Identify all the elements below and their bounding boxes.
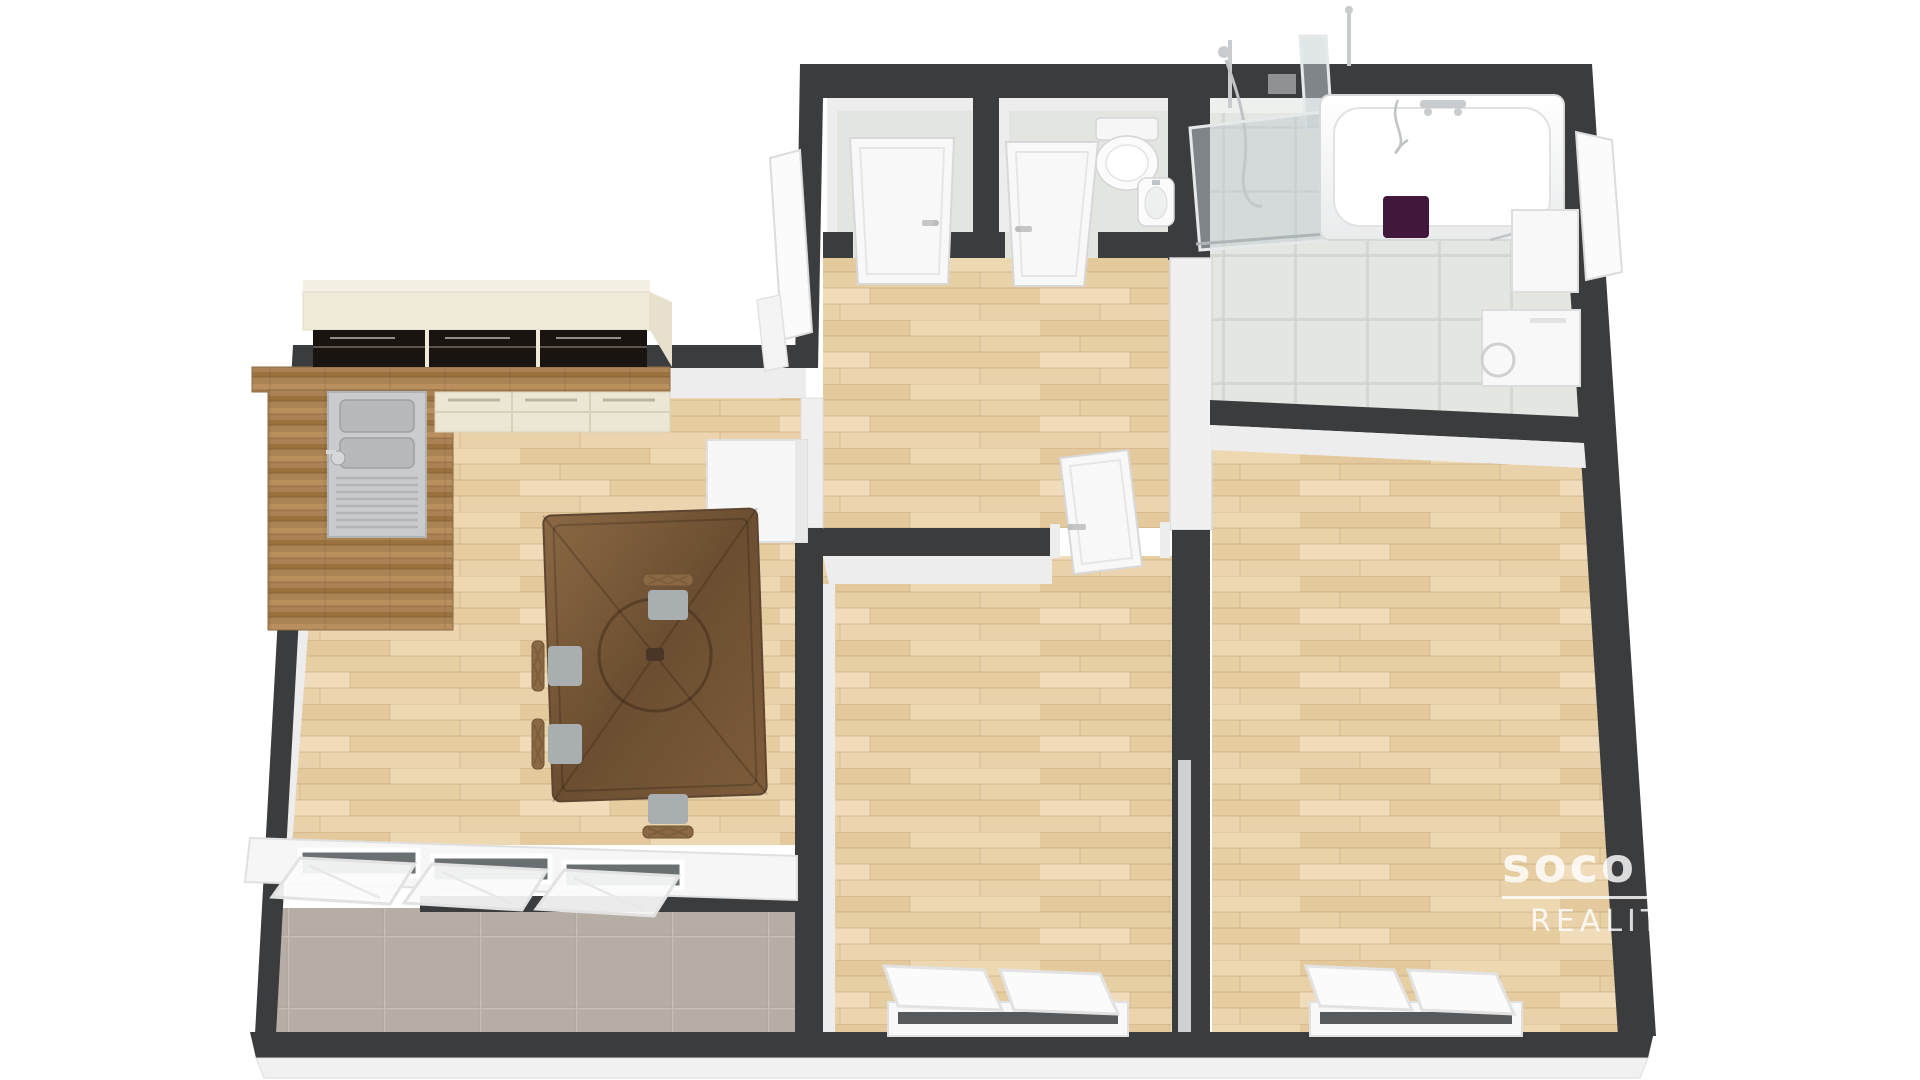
floor-plan-svg <box>0 0 1920 1080</box>
bedroom1-window <box>884 966 1128 1036</box>
bedroom1-door <box>1060 450 1142 574</box>
kitchen-sink-unit <box>326 392 426 537</box>
washing-machine <box>1482 310 1580 386</box>
bedroom1-floor <box>823 556 1172 1034</box>
door-handle-icon <box>1015 226 1032 232</box>
door-handle-icon <box>922 220 939 226</box>
bedroom2-floor <box>1212 448 1650 1032</box>
corner-sink <box>1138 178 1174 226</box>
door-handle-icon <box>1067 524 1086 530</box>
dining-chair <box>643 574 693 620</box>
dining-chair <box>532 641 582 691</box>
dining-chair <box>532 719 582 769</box>
floor-plan-stage: soco REALITY <box>0 0 1920 1080</box>
bath-towel <box>1383 196 1429 238</box>
balcony-floor <box>264 908 797 1034</box>
storage-door <box>850 138 954 284</box>
bedroom2-window <box>1306 966 1522 1036</box>
wc-door <box>1006 142 1098 286</box>
dining-chair <box>643 794 693 838</box>
